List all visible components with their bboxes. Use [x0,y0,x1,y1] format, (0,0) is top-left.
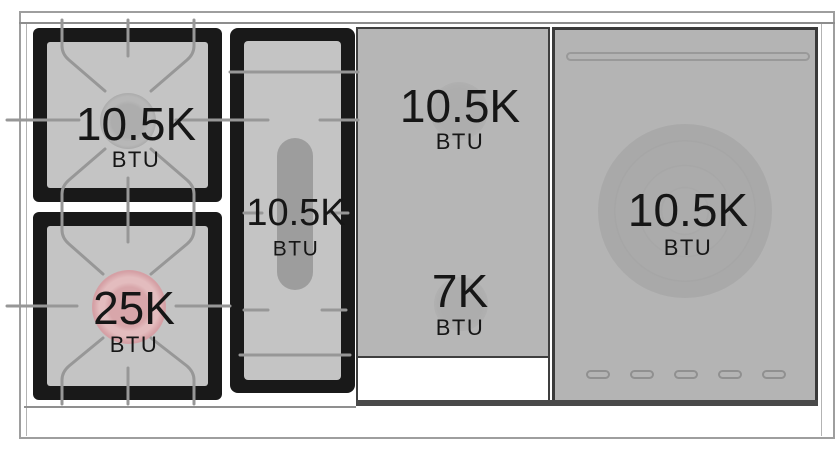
front-edge-left [24,406,356,408]
oval-burner-unit: BTU [273,239,320,260]
left-rear-burner-unit: BTU [112,149,161,171]
vent-slot [762,370,786,379]
left-rear-burner-rating: 10.5K [76,101,196,147]
left-front-burner-rating: 25K [93,285,175,331]
cooktop-diagram: 10.5K BTU 25K BTU 10.5K BTU 10.5K BTU 7K… [0,0,840,456]
french-top-unit: BTU [664,237,713,259]
french-top-rating: 10.5K [628,187,748,233]
vent-slot [586,370,610,379]
vent-slot [630,370,654,379]
handle-groove [566,52,810,61]
griddle-front-base [356,358,550,402]
griddle-front-unit: BTU [436,317,485,339]
vent-slot [718,370,742,379]
griddle-rear-unit: BTU [436,131,485,153]
vent-slot [674,370,698,379]
griddle-rear-rating: 10.5K [400,83,520,129]
left-front-burner-unit: BTU [110,334,159,356]
oval-burner-rating: 10.5K [246,194,345,232]
front-edge-right [356,400,818,406]
griddle-front-rating: 7K [432,268,488,314]
